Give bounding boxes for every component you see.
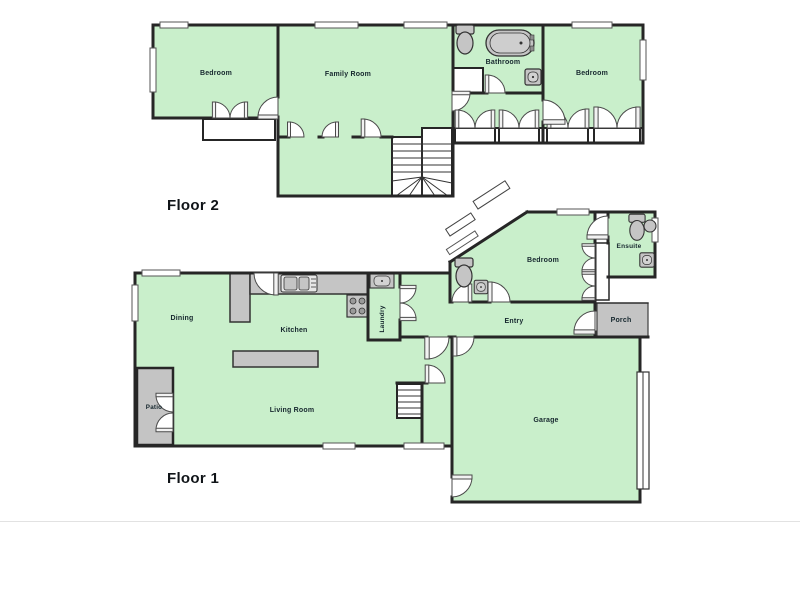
wardrobe-box (595, 243, 609, 300)
room-label-dining: Dining (171, 315, 194, 322)
window (315, 22, 358, 28)
window (640, 40, 646, 80)
sink-icon (474, 280, 488, 294)
room-label-laundry: Laundry (379, 305, 386, 332)
window (150, 48, 156, 92)
laundry-sink-icon (370, 274, 394, 288)
sink-icon (640, 253, 654, 267)
sink-icon (525, 69, 541, 85)
window (142, 270, 180, 276)
footer: ARIZTO 16 B McCallum Street, Springlands… (0, 521, 800, 600)
window (323, 443, 355, 449)
island-bench (233, 351, 318, 367)
floorplan-page: Bedroom Family Room Bathroom Bedroom Flo… (0, 0, 800, 600)
room-label-ensuite: Ensuite (617, 243, 642, 250)
room-label-family-room: Family Room (325, 71, 371, 78)
toilet-icon (455, 258, 473, 287)
closet-box (547, 128, 588, 143)
room-label-patio: Patio (146, 404, 162, 411)
room-label-garage: Garage (533, 417, 558, 424)
counter (230, 273, 250, 322)
floor1-label: Floor 1 (167, 470, 219, 487)
stove-icon (347, 295, 368, 317)
toilet-icon (629, 214, 645, 240)
room-label-living-room: Living Room (270, 407, 315, 414)
closet-box (499, 128, 539, 143)
basin-icon (644, 220, 656, 232)
closet-box (453, 68, 483, 93)
room-label-bedroom-floor1: Bedroom (527, 257, 559, 264)
room-label-bathroom: Bathroom (486, 59, 521, 66)
room-label-porch: Porch (611, 317, 632, 324)
room-label-entry: Entry (505, 318, 524, 325)
window (160, 22, 188, 28)
bathtub-icon (486, 30, 534, 56)
staircase-floor2 (392, 128, 452, 196)
floor1-rooms (135, 212, 655, 502)
window (404, 22, 447, 28)
staircase-floor1 (397, 384, 422, 418)
kitchen-sink-icon (281, 275, 317, 292)
room-label-kitchen: Kitchen (280, 327, 307, 334)
window (557, 209, 589, 215)
garage-door (637, 372, 649, 489)
window (132, 285, 138, 321)
floor-plan-drawing: Bedroom Family Room Bathroom Bedroom Flo… (0, 0, 800, 521)
wardrobe-box (203, 119, 275, 140)
room-label-bedroom-left-floor2: Bedroom (200, 70, 232, 77)
floor2-label: Floor 2 (167, 197, 219, 214)
window (404, 443, 444, 449)
closet-box (455, 128, 495, 143)
room-label-bedroom-right-floor2: Bedroom (576, 70, 608, 77)
toilet-icon (456, 25, 474, 54)
closet-box (594, 128, 640, 143)
window (572, 22, 612, 28)
